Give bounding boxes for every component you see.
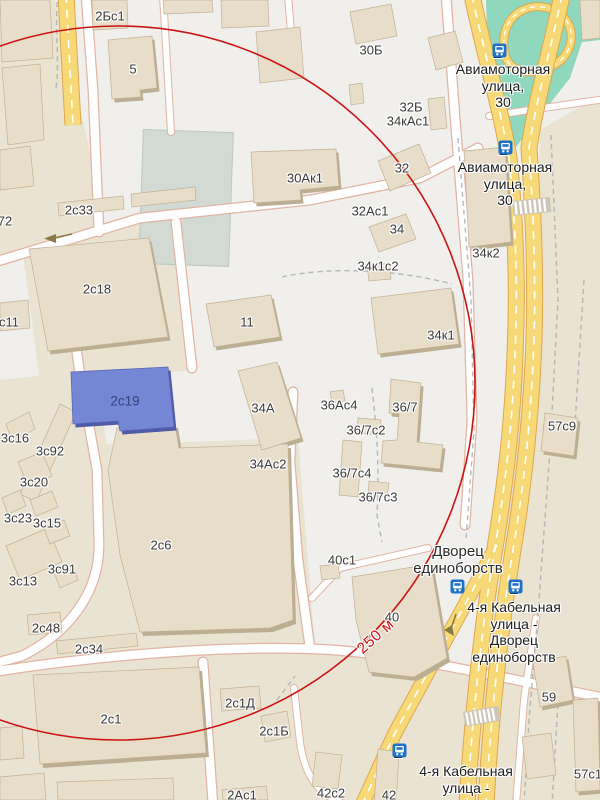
bus-stop[interactable]: 1 — [392, 743, 402, 763]
map-canvas[interactable]: 2Бс1530Б32Б34кАс13230Ак12с337232Ас13434к… — [0, 0, 600, 800]
bus-stop-icon[interactable] — [450, 579, 465, 594]
map-base — [0, 0, 600, 800]
bus-stop-icon[interactable] — [498, 140, 513, 155]
bus-stop[interactable]: 2 — [498, 140, 508, 160]
bus-stop[interactable]: 2 — [492, 43, 502, 63]
highlighted-building[interactable] — [71, 367, 174, 431]
bus-stop-icon[interactable] — [508, 579, 523, 594]
bus-stop[interactable]: 1 — [508, 579, 518, 599]
bus-stop-icon[interactable] — [492, 43, 507, 58]
bus-stop-icon[interactable] — [392, 743, 407, 758]
